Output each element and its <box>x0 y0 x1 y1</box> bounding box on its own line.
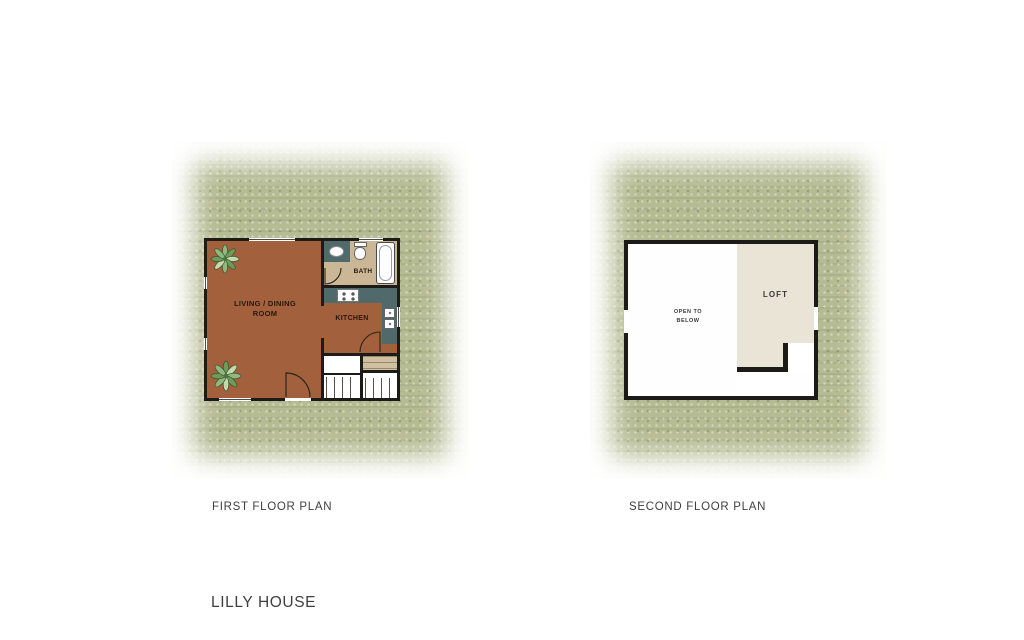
window-marker <box>204 277 207 289</box>
stove-icon <box>337 289 359 302</box>
wall-segment <box>321 288 324 306</box>
open-to-below-label-line1: OPEN TO <box>646 308 730 317</box>
loft-label: LOFT <box>737 290 814 300</box>
window-marker <box>204 338 207 350</box>
floor-plan-sheet: LIVING / DINING ROOM <box>0 0 1024 640</box>
door-arc-icon <box>359 331 381 353</box>
second-floor-plan: OPEN TO BELOW LOFT <box>624 240 818 400</box>
window-marker <box>624 310 628 333</box>
window-marker <box>219 398 251 401</box>
window-marker <box>359 238 383 241</box>
vanity-counter <box>324 241 350 262</box>
window-marker <box>397 307 400 327</box>
room-kitchen: KITCHEN <box>321 288 397 353</box>
first-floor-plan: LIVING / DINING ROOM <box>204 238 400 401</box>
living-dining-room-label-line2: ROOM <box>209 309 321 319</box>
kitchen-counter <box>321 288 397 303</box>
stair-treads <box>365 378 397 398</box>
bathtub-icon <box>376 242 395 284</box>
stairs <box>321 353 397 398</box>
plant-icon <box>210 360 242 392</box>
door-arc-icon <box>285 372 311 398</box>
kitchen-label: KITCHEN <box>321 314 383 323</box>
first-floor-caption: FIRST FLOOR PLAN <box>212 501 332 513</box>
stair-treads <box>737 372 788 396</box>
bathtub-basin <box>379 245 392 281</box>
stair-treads <box>326 377 358 398</box>
page-title: LILLY HOUSE <box>211 594 316 612</box>
door-opening <box>285 398 311 401</box>
kitchen-sink-icon <box>384 308 395 318</box>
window-marker <box>814 307 818 330</box>
sink-icon <box>329 246 344 257</box>
living-dining-room-label-line1: LIVING / DINING <box>209 299 321 309</box>
kitchen-sink-icon <box>384 319 395 329</box>
bath-label: BATH <box>348 268 378 276</box>
window-marker <box>249 238 295 241</box>
wall-segment <box>321 338 324 353</box>
living-dining-room-label: LIVING / DINING ROOM <box>209 299 321 319</box>
open-to-below-label-line2: BELOW <box>646 317 730 326</box>
second-floor-caption: SECOND FLOOR PLAN <box>629 501 766 513</box>
plant-icon <box>210 244 240 274</box>
open-to-below-label: OPEN TO BELOW <box>646 308 730 326</box>
door-arc-icon <box>324 267 342 285</box>
room-bath: BATH <box>321 241 397 288</box>
stair-treads <box>363 356 397 373</box>
toilet-icon <box>354 247 366 260</box>
room-loft <box>737 343 783 367</box>
stair-landing <box>324 356 360 375</box>
stair-treads <box>788 343 814 372</box>
